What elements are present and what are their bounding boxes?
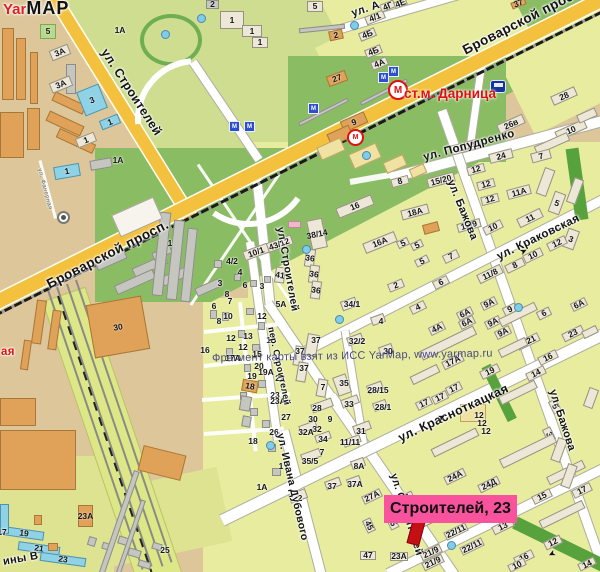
building: 30 — [86, 296, 151, 359]
street-name-label: ая — [1, 346, 15, 358]
building-number: 7 — [538, 151, 545, 160]
house-number-label: 12 — [481, 426, 490, 436]
building-number: 8 — [397, 177, 404, 186]
stop-dot-icon — [266, 441, 275, 450]
house-number-label: 37А — [347, 479, 363, 489]
house-number-label: 27 — [281, 412, 290, 422]
building — [241, 415, 252, 427]
building — [30, 52, 38, 104]
house-number-label: 28 — [312, 403, 321, 413]
house-number-label: 32/2 — [349, 336, 366, 346]
building-number: 9 — [350, 117, 358, 127]
house-number-label: 6 — [212, 301, 217, 311]
building — [48, 543, 58, 551]
house-number-label: 1А — [115, 25, 126, 35]
house-number-label: 25 — [160, 545, 169, 555]
stop-dot-icon — [514, 303, 523, 312]
building — [0, 112, 24, 158]
stop-dot-icon — [302, 245, 311, 254]
house-number-label: 10 — [223, 311, 232, 321]
house-number-label: 17 — [0, 527, 7, 537]
house-number-label: 19А — [258, 367, 274, 377]
transit-stop-icon: М — [244, 121, 255, 132]
building — [258, 380, 266, 388]
transit-stop-icon: М — [229, 121, 240, 132]
house-number-label: 7 — [321, 382, 326, 392]
building — [0, 430, 76, 490]
house-number-label: 13 — [243, 331, 252, 341]
stop-dot-icon — [362, 151, 371, 160]
house-number-label: 8 — [217, 316, 222, 326]
building-number: 36 — [305, 253, 316, 263]
house-number-label: 9 — [328, 414, 333, 424]
map-canvas[interactable]: ст.м. Дарница Фрагмент карты взят из ИСС… — [0, 0, 600, 572]
house-number-label: 19 — [247, 371, 256, 381]
house-number-label: 7 — [228, 296, 233, 306]
transit-stop-icon: М — [388, 66, 399, 77]
building-number: 1 — [106, 117, 114, 127]
building: 2 — [206, 0, 219, 9]
building-number: 5 — [418, 256, 426, 266]
building-number: 1 — [250, 27, 255, 36]
house-number-label: 32А — [298, 427, 314, 437]
building: 23А — [78, 505, 93, 527]
house-number-label: 11/11 — [340, 437, 360, 447]
house-number-label: 30 — [308, 414, 317, 424]
house-number-label: 12 — [238, 342, 247, 352]
house-number-label: 5А — [276, 299, 287, 309]
stop-dot-icon — [161, 30, 170, 39]
house-number-label: 4 — [379, 316, 384, 326]
house-number-label: 4 — [238, 267, 243, 277]
building: 1 — [252, 37, 268, 48]
building-number: 16 — [349, 201, 361, 212]
building-number: 1 — [82, 135, 90, 145]
house-number-label: 28/1 — [375, 402, 392, 412]
building-number: 47 — [363, 551, 372, 560]
building-number: 30 — [113, 322, 124, 332]
building — [250, 408, 258, 416]
building — [214, 260, 222, 268]
building-number: 4 — [414, 303, 422, 313]
building: 1 — [220, 11, 244, 29]
building — [27, 108, 40, 150]
building-number: 36 — [311, 285, 322, 295]
building-number: 8 — [511, 261, 519, 271]
yarmap-logo: YarMAP — [3, 0, 69, 19]
building-number: 6 — [540, 309, 548, 319]
house-number-label: 35 — [339, 378, 348, 388]
house-number-label: 31 — [356, 426, 365, 436]
house-number-label: 1А — [257, 482, 268, 492]
building — [250, 280, 257, 287]
stop-dot-icon — [447, 541, 456, 550]
building-number: 2 — [392, 281, 400, 291]
building-number: 1 — [258, 38, 263, 47]
transit-stop-icon: М — [308, 103, 319, 114]
metro-station-label: ст.м. Дарница — [404, 86, 496, 101]
building-number: 23 — [58, 555, 69, 565]
building-number: 6 — [437, 278, 445, 288]
house-number-label: 8А — [354, 461, 365, 471]
house-number-label: 3 — [260, 281, 265, 291]
building-number: 7 — [447, 252, 455, 262]
logo-part-yar: Yar — [3, 1, 26, 18]
stop-dot-icon — [335, 315, 344, 324]
building — [258, 322, 265, 330]
building-number: 5 — [46, 27, 51, 36]
building-number: 38/14 — [306, 228, 329, 241]
logo-part-map: MAP — [26, 0, 69, 18]
house-number-label: 3 — [218, 278, 223, 288]
building-number: 27 — [331, 73, 343, 84]
house-number-label: 37 — [327, 481, 336, 491]
house-number-label: 34 — [318, 434, 327, 444]
building — [34, 515, 42, 525]
poi-circle-icon — [57, 211, 70, 224]
building-number: 5 — [399, 238, 407, 248]
house-number-label: 1А — [113, 155, 124, 165]
building-number: 36 — [309, 269, 320, 279]
house-number-label: 7 — [320, 447, 325, 457]
house-number-label: 16 — [200, 345, 209, 355]
house-number-label: 12 — [226, 333, 235, 343]
stop-dot-icon — [197, 14, 206, 23]
house-number-label: 1 — [168, 238, 173, 248]
building — [16, 38, 26, 100]
building — [0, 398, 36, 426]
building: 23А — [390, 552, 408, 561]
building — [2, 28, 14, 100]
house-number-label: 33 — [344, 399, 353, 409]
building-number: 18 — [245, 381, 256, 391]
address-marker: Строителей, 23 — [384, 495, 517, 523]
metro-icon: М — [347, 129, 364, 146]
house-number-label: 4/2 — [226, 256, 238, 266]
building-number: 1 — [230, 16, 235, 25]
building: 5 — [307, 1, 323, 12]
building: 5 — [40, 24, 56, 39]
building-number: 23А — [78, 512, 94, 521]
house-number-label: 28/15 — [367, 385, 388, 395]
building: 1 — [242, 25, 262, 37]
building-number: 5 — [313, 2, 318, 11]
house-number-label: 37 — [299, 363, 308, 373]
stop-dot-icon — [350, 21, 359, 30]
building-number: 2 — [333, 30, 339, 39]
building — [264, 276, 271, 283]
building — [288, 221, 301, 228]
building-number: 19 — [19, 529, 30, 539]
building-number: 24 — [495, 151, 506, 162]
house-number-label: 18 — [248, 436, 257, 446]
building-number: 1 — [64, 167, 70, 176]
building-number: 5 — [413, 240, 421, 250]
house-number-label: 34/1 — [344, 299, 361, 309]
house-number-label: 37 — [311, 335, 320, 345]
building — [246, 308, 254, 315]
house-number-label: 35/5 — [302, 456, 319, 466]
building: 47 — [360, 551, 376, 560]
house-number-label: 12 — [257, 311, 266, 321]
building-number: 23А — [391, 552, 407, 561]
building-number: 2 — [210, 0, 215, 9]
building-number: 5 — [553, 198, 560, 208]
address-marker-label: Строителей, 23 — [390, 500, 511, 518]
building-number: 3 — [88, 95, 96, 105]
building-number: 3 — [567, 234, 574, 244]
house-number-label: 6 — [243, 280, 248, 290]
